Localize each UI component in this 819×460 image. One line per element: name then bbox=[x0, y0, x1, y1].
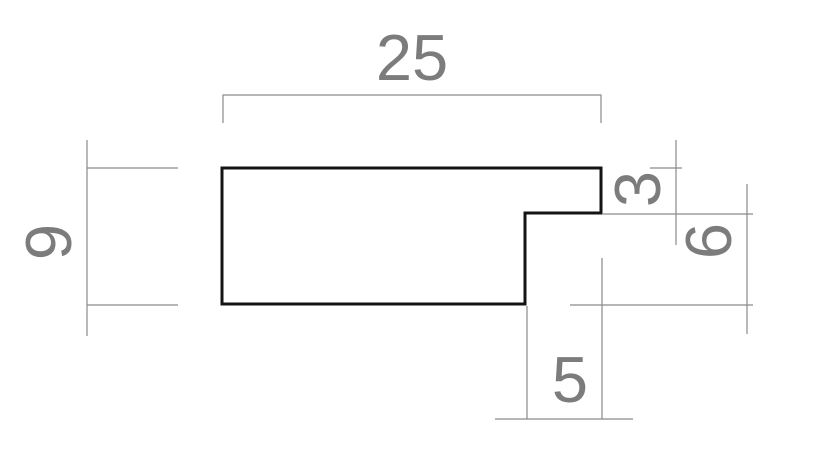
profile-outline bbox=[222, 168, 601, 304]
dim-rabbet-width-label: 5 bbox=[552, 343, 588, 416]
dimension-lines-layer bbox=[87, 95, 753, 419]
dim-total-height-label: 9 bbox=[12, 224, 85, 260]
dim-lip-thickness-label: 3 bbox=[601, 171, 674, 207]
dim-rabbet-height-label: 6 bbox=[672, 223, 745, 259]
drawing-canvas: 25 9 3 6 5 bbox=[0, 0, 819, 460]
dimension-labels-layer: 25 9 3 6 5 bbox=[12, 21, 745, 416]
dim-total-width-lines bbox=[223, 95, 601, 123]
profile-technical-drawing: 25 9 3 6 5 bbox=[0, 0, 819, 460]
dim-total-height-lines bbox=[87, 140, 178, 336]
dim-total-width-label: 25 bbox=[376, 21, 448, 94]
